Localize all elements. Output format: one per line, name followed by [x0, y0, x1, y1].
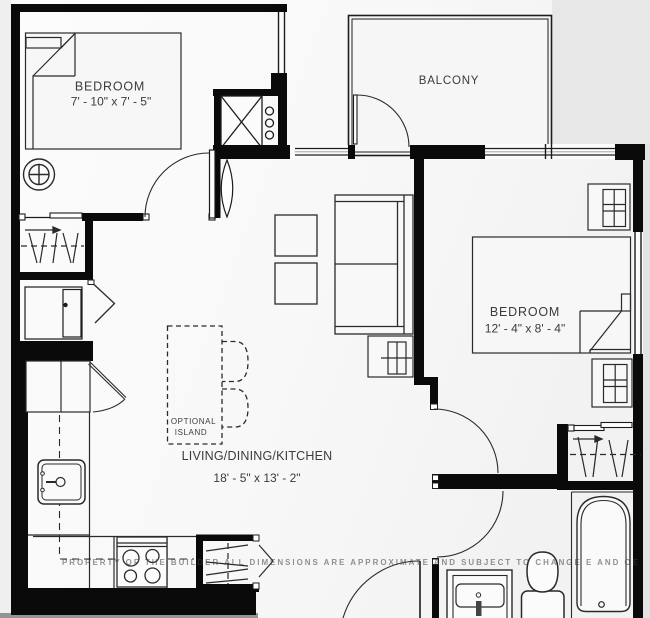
svg-text:ISLAND: ISLAND — [175, 428, 208, 437]
svg-text:18' - 5" x 13' - 2": 18' - 5" x 13' - 2" — [213, 471, 300, 485]
svg-text:PROPERTY OF THE BUILDER ALL DI: PROPERTY OF THE BUILDER ALL DIMENSIONS A… — [62, 558, 640, 567]
svg-text:BEDROOM: BEDROOM — [75, 80, 145, 94]
svg-text:LIVING/DINING/KITCHEN: LIVING/DINING/KITCHEN — [182, 449, 333, 463]
svg-text:7' - 10" x 7' - 5": 7' - 10" x 7' - 5" — [71, 95, 151, 109]
svg-text:OPTIONAL: OPTIONAL — [171, 417, 216, 426]
svg-text:BEDROOM: BEDROOM — [490, 305, 560, 319]
svg-text:12' - 4" x 8' - 4": 12' - 4" x 8' - 4" — [485, 322, 565, 336]
svg-text:BALCONY: BALCONY — [419, 75, 480, 87]
